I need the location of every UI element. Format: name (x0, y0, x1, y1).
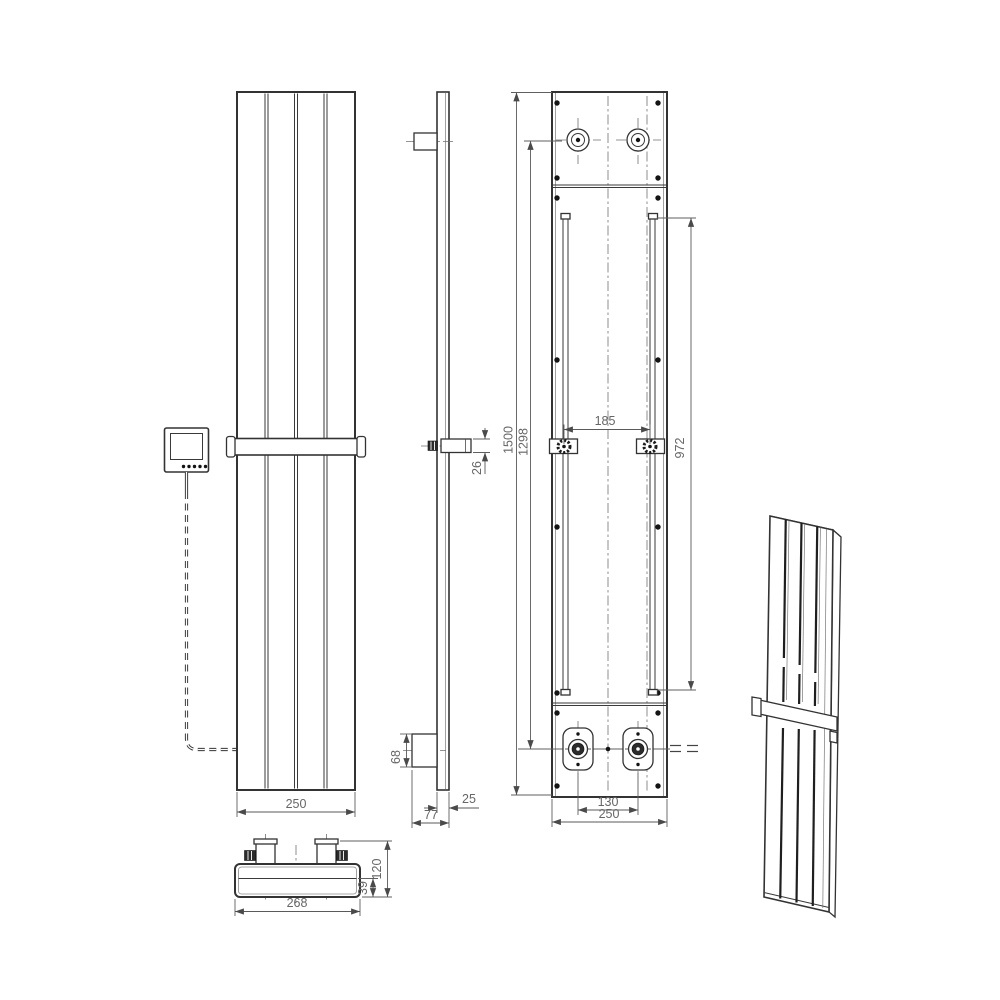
dim-top-inner: 39 (356, 879, 378, 898)
thermostat-controller (165, 428, 209, 472)
dim-label-front-width: 250 (286, 797, 307, 811)
rail-clamp-left (550, 439, 578, 454)
controller-cable (187, 472, 237, 750)
top-view: 120 39 268 (235, 834, 392, 916)
rail-clamp-right (637, 439, 665, 454)
towel-bar-front (227, 437, 366, 458)
alignment-marks (670, 746, 698, 752)
towel-bar-profile (421, 439, 471, 453)
radiator-technical-drawing: 250 26 (0, 0, 1000, 1000)
dim-label-top-inner: 39 (356, 881, 370, 895)
dim-label-total-depth: 77 (424, 808, 438, 822)
dim-label-valve-span: 1298 (517, 428, 531, 456)
bottom-valve-left (563, 721, 593, 777)
dim-label-valve-height: 68 (389, 750, 403, 764)
dim-label-top-depth: 120 (370, 859, 384, 880)
dim-towel-bar: 26 (470, 428, 490, 475)
back-view: 185 972 1500 1298 130 (502, 92, 699, 827)
dim-label-rail-spacing: 185 (595, 414, 616, 428)
side-view: 26 68 25 77 (389, 92, 490, 828)
dim-label-panel-depth: 25 (462, 792, 476, 806)
bottom-valve-right (623, 721, 653, 777)
drawing-canvas: 250 26 (0, 0, 1000, 1000)
front-view: 250 (227, 92, 366, 817)
dim-front-width: 250 (237, 792, 355, 817)
dim-label-top-width: 268 (287, 896, 308, 910)
dim-label-towel-bar: 26 (470, 461, 484, 475)
dim-top-width: 268 (235, 896, 360, 916)
dim-label-rail-length: 972 (673, 438, 687, 459)
perspective-view (752, 516, 841, 917)
dim-label-back-height: 1500 (502, 426, 516, 454)
dim-label-back-width: 250 (599, 807, 620, 821)
